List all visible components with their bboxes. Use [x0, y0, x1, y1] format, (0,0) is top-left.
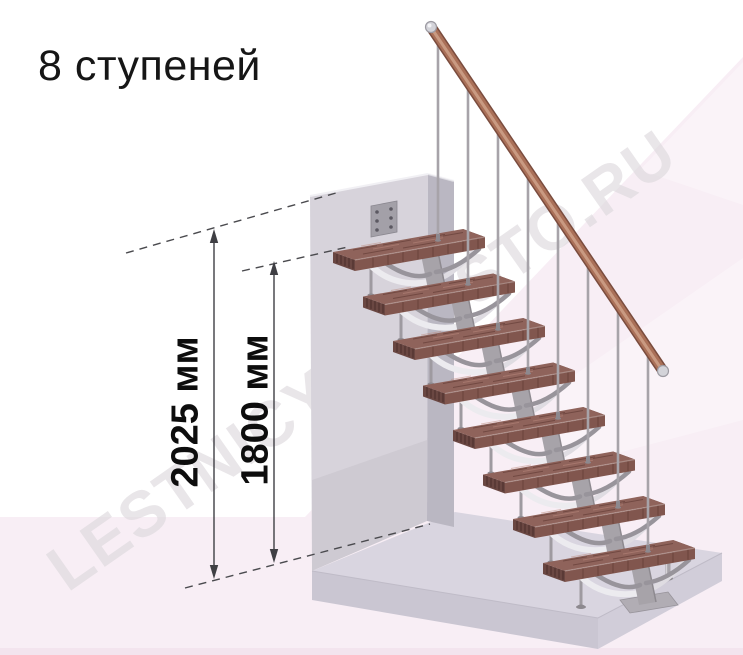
handrail-top-cap	[426, 22, 437, 33]
handrail-bottom-cap	[658, 366, 669, 377]
dimension-label-overall-height: 2025 мм	[165, 336, 208, 487]
wall-mounting-plate	[371, 201, 397, 237]
extension-line-top	[126, 193, 336, 253]
dimension-label-top-tread-height: 1800 мм	[235, 334, 278, 485]
diagram-canvas: LESTNICY-PROSTO.RU	[0, 0, 743, 655]
page-title: 8 ступеней	[38, 42, 261, 91]
arrow-up-icon	[210, 229, 218, 243]
dimension-line-overall-height	[210, 229, 218, 579]
scene-layer	[0, 0, 743, 655]
arrow-down-icon	[270, 549, 278, 563]
arrow-down-icon	[210, 565, 218, 579]
